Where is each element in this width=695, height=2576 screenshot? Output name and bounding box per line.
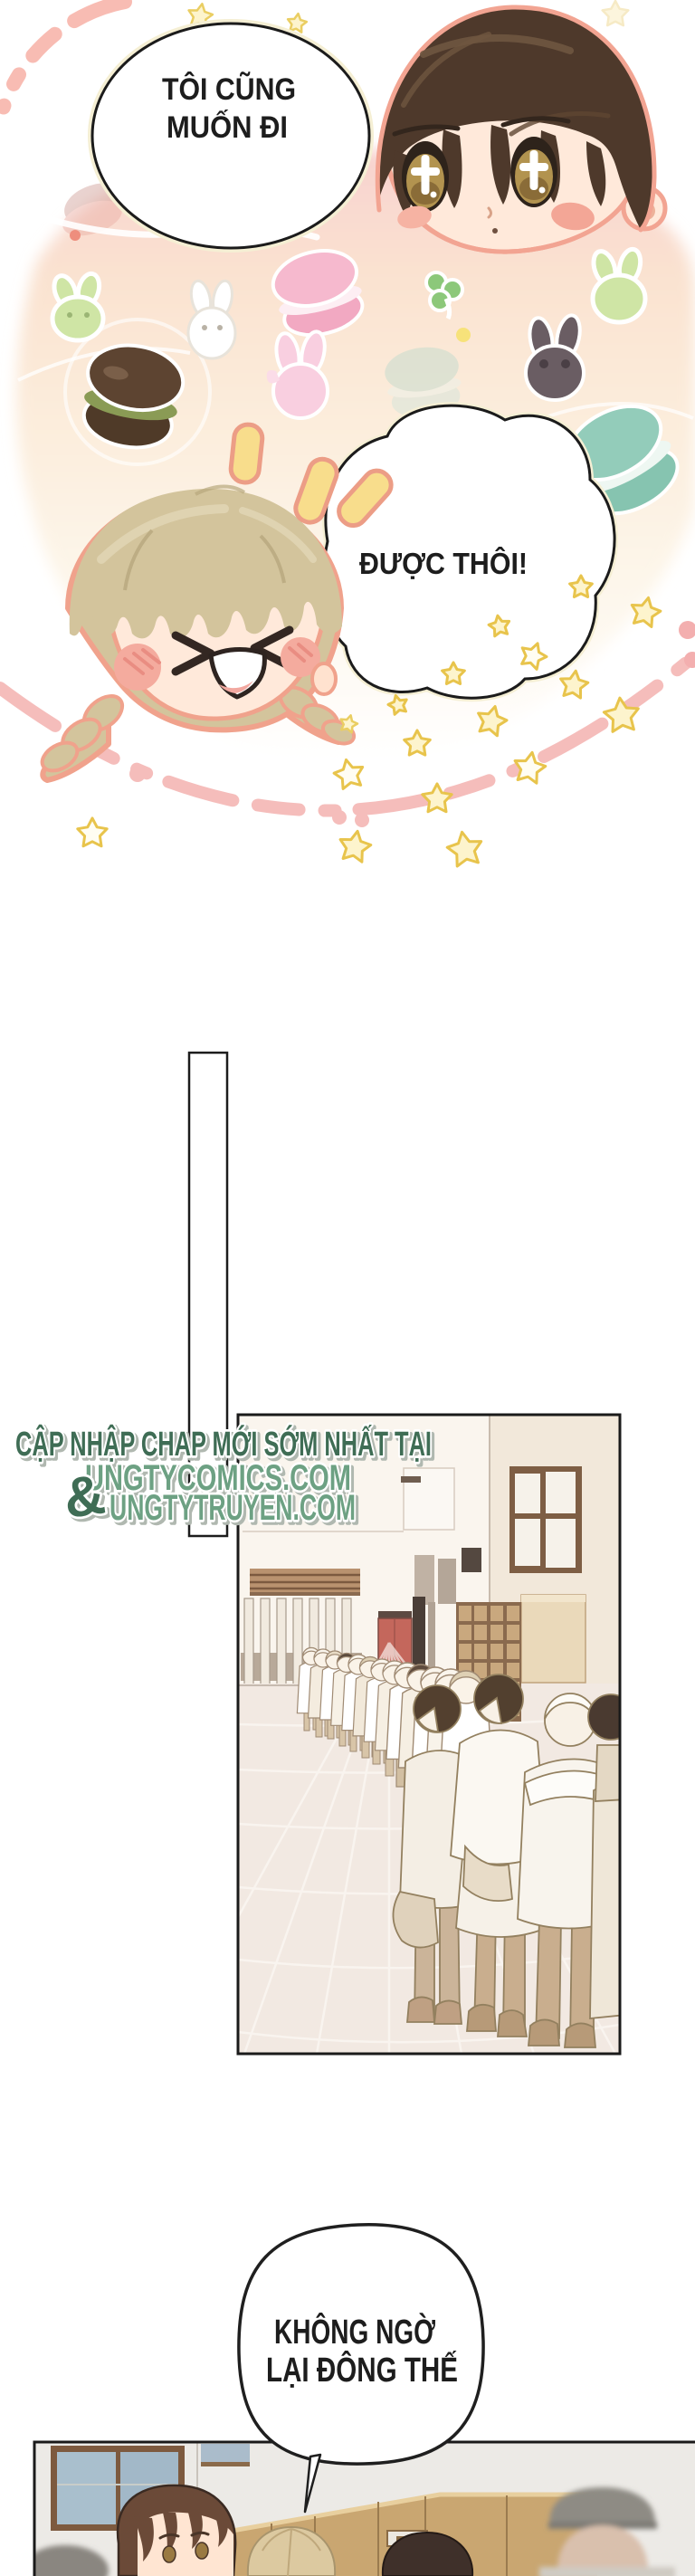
- svg-text:KHÔNG NGỜ: KHÔNG NGỜ: [274, 2311, 435, 2352]
- svg-text:TÔI CŨNG: TÔI CŨNG: [162, 72, 296, 107]
- svg-text:ĐƯỢC THÔI!: ĐƯỢC THÔI!: [359, 546, 528, 580]
- svg-text:LẠI ĐÔNG THẾ: LẠI ĐÔNG THẾ: [266, 2349, 458, 2390]
- svg-text:MUỐN ĐI: MUỐN ĐI: [167, 110, 288, 145]
- svg-text:&: &: [60, 1463, 109, 1531]
- svg-text:UNGTYTRUYEN.COM: UNGTYTRUYEN.COM: [109, 1488, 356, 1528]
